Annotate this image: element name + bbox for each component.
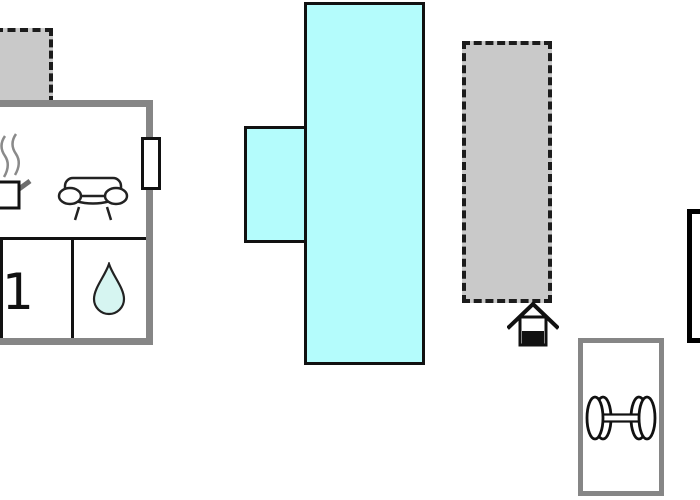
dumbbell-bar — [599, 415, 643, 422]
water-drop-shape — [94, 264, 124, 314]
pot-body — [0, 182, 19, 208]
dumbbell-disk-front — [639, 397, 655, 439]
building-partial-right — [687, 209, 700, 343]
house-door — [522, 331, 544, 344]
sofa-armrest — [105, 188, 127, 204]
outbuilding-right — [462, 41, 552, 303]
pot-handle — [19, 181, 30, 189]
sofa-icon — [54, 171, 132, 223]
water-area-annex — [244, 126, 307, 243]
water-drop-icon — [92, 262, 126, 318]
bedroom-1-number: 1 — [2, 267, 34, 317]
steam-line — [2, 136, 8, 177]
house-icon — [507, 300, 559, 350]
floor-plan: 1 — [0, 0, 700, 500]
dumbbell-icon — [582, 392, 660, 444]
pot-steam-icon — [0, 132, 34, 212]
sofa-legs — [75, 207, 111, 220]
window-marker — [141, 137, 161, 190]
steam-line — [13, 134, 19, 175]
dumbbell-disk-front — [587, 397, 603, 439]
sofa-armrest — [59, 188, 81, 204]
water-area-main — [304, 2, 425, 365]
outbuilding-top-left — [0, 28, 53, 104]
interior-wall-vertical — [71, 237, 74, 338]
